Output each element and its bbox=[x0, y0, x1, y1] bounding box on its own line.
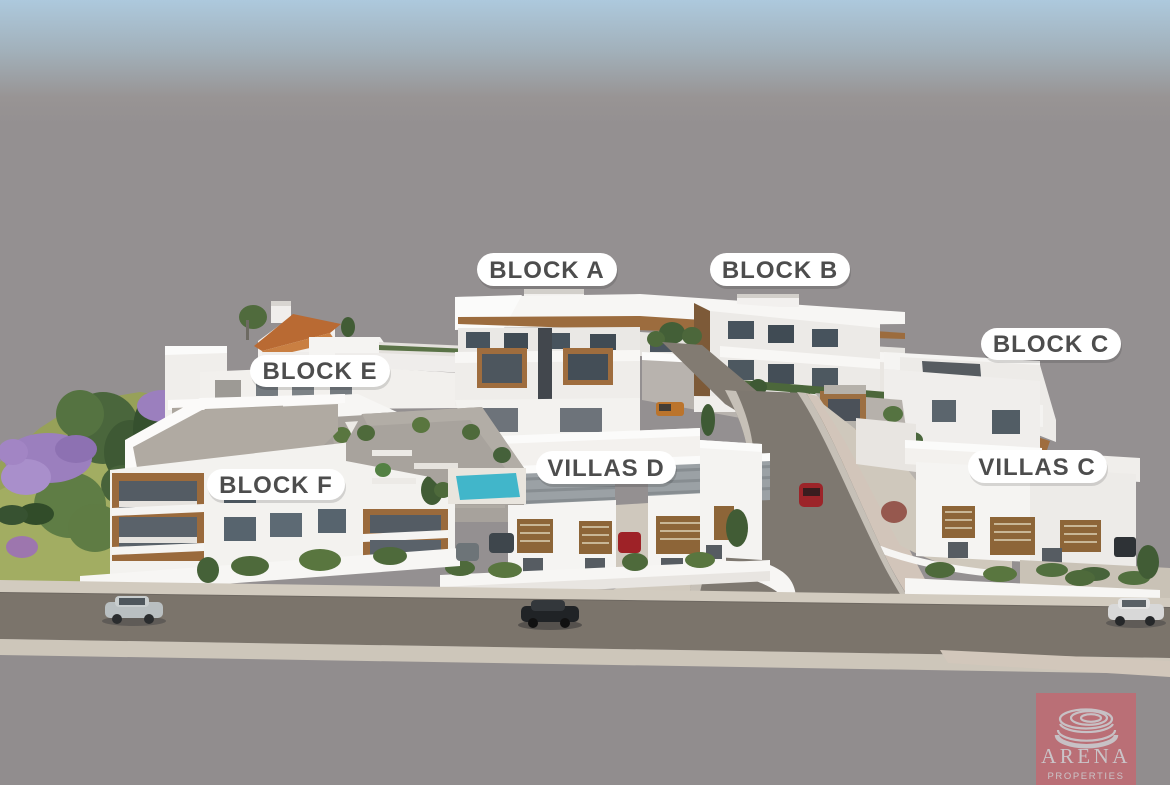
svg-text:VILLAS D: VILLAS D bbox=[547, 455, 664, 482]
svg-text:BLOCK E: BLOCK E bbox=[263, 358, 378, 385]
svg-text:BLOCK B: BLOCK B bbox=[722, 257, 838, 284]
svg-text:BLOCK C: BLOCK C bbox=[993, 331, 1109, 358]
svg-text:BLOCK F: BLOCK F bbox=[219, 472, 333, 499]
svg-text:PROPERTIES: PROPERTIES bbox=[1047, 771, 1124, 782]
svg-text:ARENA: ARENA bbox=[1041, 744, 1131, 768]
svg-text:BLOCK A: BLOCK A bbox=[489, 257, 604, 284]
svg-text:VILLAS C: VILLAS C bbox=[978, 454, 1095, 481]
